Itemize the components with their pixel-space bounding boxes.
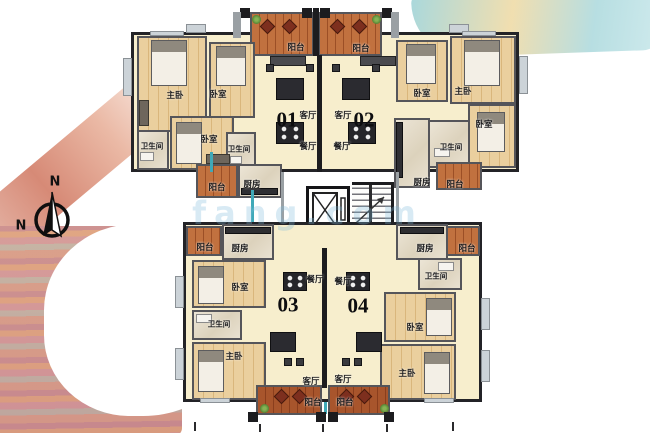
unit-04-living-label: 客厅 (334, 373, 351, 385)
window (200, 398, 230, 403)
unit-number-02: 02 (354, 108, 375, 133)
unit-04-bedroom-label: 卧室 (406, 321, 423, 333)
unit-04-bathroom-label: 卫生间 (425, 271, 448, 282)
unit-03-bottom-balcony-label: 阳台 (304, 396, 321, 408)
armchair (284, 358, 292, 366)
bed (424, 352, 450, 394)
bed (198, 350, 224, 392)
potted-plant (260, 404, 269, 413)
bay-window (519, 56, 528, 94)
pillar (302, 8, 312, 18)
tv-cabinet (270, 332, 296, 352)
bed (426, 298, 452, 336)
unit-01-bathroom-2-label: 卫生间 (228, 144, 251, 155)
kitchen-counter (396, 122, 403, 178)
bathtub (140, 152, 154, 161)
unit-02-bedroom-2-label: 卧室 (475, 118, 492, 130)
party-wall-top (317, 55, 322, 172)
pillar (328, 412, 338, 422)
pillar (384, 412, 394, 422)
side-table (332, 64, 340, 72)
window (462, 31, 496, 36)
bay-window (175, 348, 184, 380)
unit-03-dining-label: 餐厅 (306, 273, 323, 285)
unit-01-bedroom-3-label: 卧室 (200, 133, 217, 145)
unit-02-bedroom-1-label: 卧室 (413, 87, 430, 99)
unit-04-top-balcony-label: 阳台 (458, 242, 475, 254)
bed (406, 44, 436, 84)
unit-01-top-balcony-label: 阳台 (287, 41, 304, 53)
pillar (316, 412, 326, 422)
sofa (270, 56, 306, 66)
tv-cabinet (276, 78, 304, 100)
bed (176, 122, 202, 164)
watermark: fang.com (192, 194, 424, 232)
dimension-tick (259, 424, 261, 432)
dimension-tick (322, 424, 324, 432)
unit-03-living-label: 客厅 (302, 375, 319, 387)
unit-02-master-bedroom-label: 主卧 (454, 85, 471, 97)
unit-02-dining-label: 餐厅 (333, 140, 350, 152)
pillar (248, 412, 258, 422)
dimension-tick (452, 422, 454, 431)
party-wall-bottom (322, 248, 327, 388)
armchair (354, 358, 362, 366)
bed (198, 266, 224, 304)
side-table (306, 64, 314, 72)
pillar (240, 8, 250, 18)
window (424, 398, 454, 403)
unit-01-kitchen-label: 厨房 (243, 178, 260, 190)
unit-04-master-bedroom-label: 主卧 (398, 367, 415, 379)
bay-window (481, 350, 490, 382)
floor-plan-page: 主卧 卧室 卧室 卫生间 卫生间 阳台 客厅 餐厅 阳台 厨房 阳台 客厅 餐厅… (0, 0, 650, 433)
unit-02-living-label: 客厅 (334, 109, 351, 121)
unit-01-bathroom-1-label: 卫生间 (141, 141, 164, 152)
bay-window (481, 298, 490, 330)
dining-table (283, 272, 307, 291)
unit-01-master-bedroom-label: 主卧 (166, 89, 183, 101)
wardrobe (139, 100, 149, 126)
unit-03-bedroom-label: 卧室 (231, 281, 248, 293)
north-label: N (50, 175, 61, 190)
riser-pipe (210, 152, 213, 172)
side-table (266, 64, 274, 72)
dimension-tick (386, 424, 388, 432)
unit-03-kitchen-label: 厨房 (231, 242, 248, 254)
unit-01-bottom-balcony-label: 阳台 (208, 181, 225, 193)
unit-03-top-balcony-label: 阳台 (196, 241, 213, 253)
unit-02-bottom-balcony-label: 阳台 (446, 178, 463, 190)
compass-icon (22, 190, 86, 256)
unit-04-dining-label: 餐厅 (334, 275, 351, 287)
potted-plant (252, 15, 261, 24)
unit-number-03: 03 (278, 293, 299, 318)
potted-plant (372, 15, 381, 24)
tv-cabinet (342, 78, 370, 100)
bay-window (123, 58, 132, 96)
tv-cabinet (356, 332, 382, 352)
window (150, 31, 184, 36)
unit-03-master-bedroom-label: 主卧 (225, 350, 242, 362)
bay-window (175, 276, 184, 308)
flue-box (186, 24, 206, 33)
unit-02-bathroom-label: 卫生间 (440, 142, 463, 153)
unit-03-bathroom-label: 卫生间 (208, 319, 231, 330)
unit-02-top-balcony-label: 阳台 (352, 42, 369, 54)
unit-number-04: 04 (348, 294, 369, 319)
pillar (320, 8, 330, 18)
bed (216, 46, 246, 86)
unit-02-kitchen-label: 厨房 (413, 176, 430, 188)
unit-04-kitchen-label: 厨房 (416, 242, 433, 254)
unit-01-dining-label: 餐厅 (299, 140, 316, 152)
armchair (342, 358, 350, 366)
balcony-side-wall (391, 12, 399, 38)
balcony-side-wall (233, 12, 241, 38)
unit-01-bedroom-2-label: 卧室 (209, 88, 226, 100)
unit-01-living-label: 客厅 (299, 109, 316, 121)
bed (464, 40, 500, 86)
balcony-divider-wall (313, 8, 319, 56)
bed (151, 40, 187, 86)
unit-number-01: 01 (277, 108, 298, 133)
toilet (230, 156, 242, 164)
unit-04-bottom-balcony-label: 阳台 (336, 396, 353, 408)
side-table (372, 64, 380, 72)
dimension-tick (194, 422, 196, 431)
armchair (296, 358, 304, 366)
